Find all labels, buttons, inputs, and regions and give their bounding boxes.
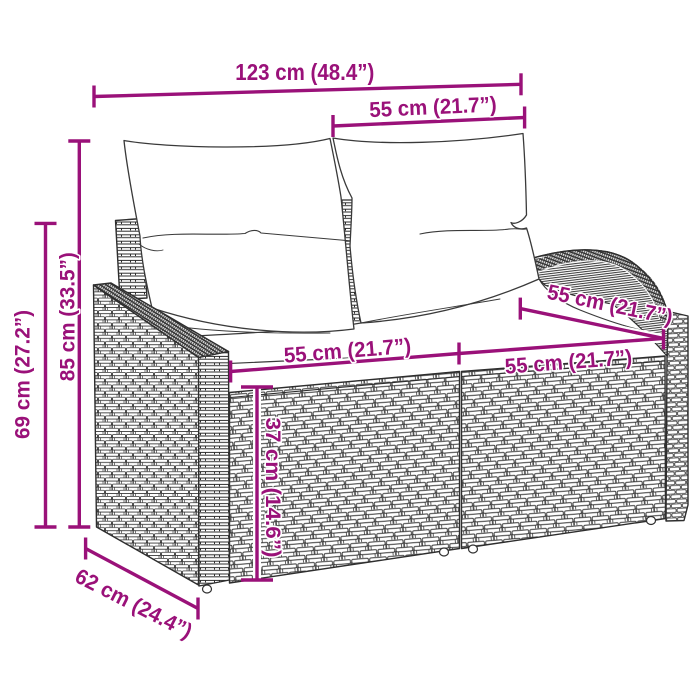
svg-text:85 cm (33.5”): 85 cm (33.5”) bbox=[56, 252, 80, 381]
svg-text:37 cm (14.6”): 37 cm (14.6”) bbox=[261, 418, 285, 558]
svg-text:69 cm (27.2”): 69 cm (27.2”) bbox=[11, 310, 35, 439]
svg-text:123 cm (48.4”): 123 cm (48.4”) bbox=[235, 59, 374, 85]
